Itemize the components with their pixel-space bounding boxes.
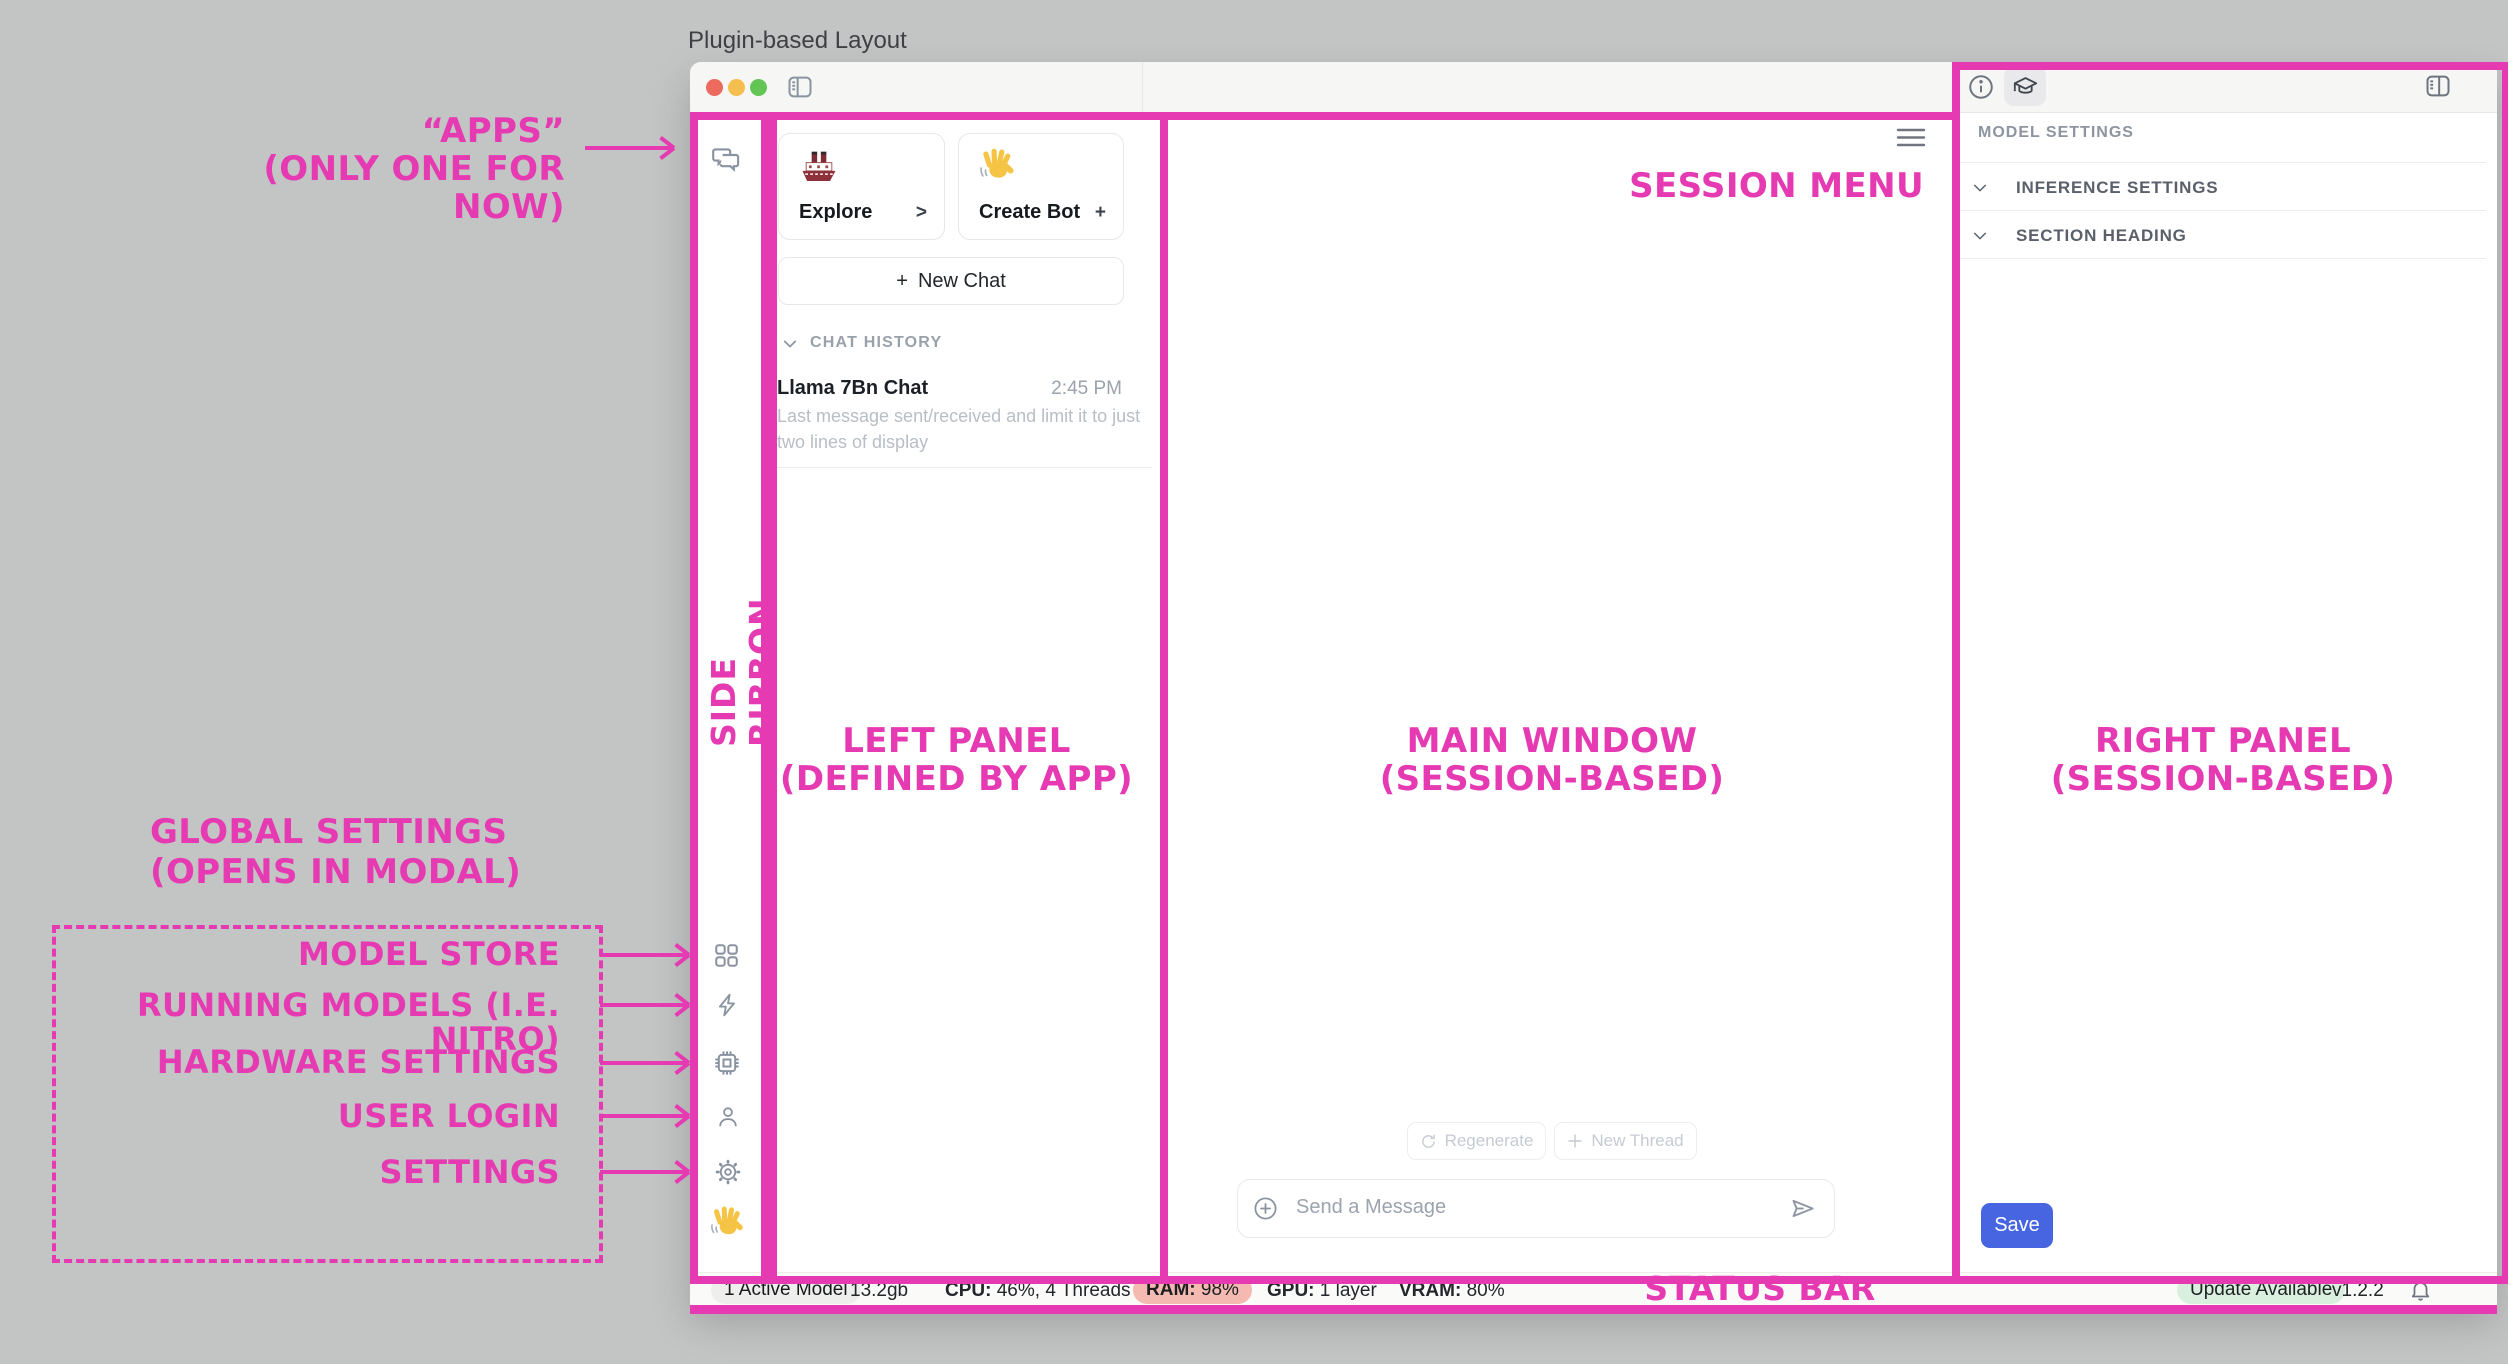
explore-card-label: Explore bbox=[799, 201, 872, 224]
hardware-settings-button[interactable] bbox=[713, 1049, 741, 1077]
create-bot-card-plus: + bbox=[1095, 202, 1106, 224]
new-chat-label: New Chat bbox=[918, 270, 1006, 293]
model-store-button[interactable] bbox=[712, 941, 741, 970]
new-thread-label: New Thread bbox=[1591, 1131, 1683, 1151]
section-heading-label[interactable]: SECTION HEADING bbox=[2016, 226, 2187, 246]
update-available-badge[interactable]: Update Available bbox=[2177, 1276, 2345, 1304]
right-panel-divider bbox=[1960, 258, 2486, 259]
running-models-arrow bbox=[600, 1003, 688, 1007]
settings-button[interactable] bbox=[714, 1158, 742, 1186]
plus-icon: + bbox=[896, 270, 908, 293]
notifications-button[interactable] bbox=[2408, 1278, 2433, 1303]
chevron-down-icon bbox=[1971, 227, 1989, 245]
right-panel-annotation: RIGHT PANEL (SESSION-BASED) bbox=[1952, 722, 2494, 798]
bell-icon bbox=[2408, 1278, 2433, 1303]
lightning-icon bbox=[715, 992, 741, 1018]
session-menu-annotation: SESSION MENU bbox=[1600, 167, 1924, 205]
wave-hand-icon bbox=[708, 1204, 748, 1244]
settings-annotation: SETTINGS bbox=[60, 1155, 560, 1189]
apps-arrow bbox=[585, 146, 673, 150]
global-settings-group-box bbox=[52, 925, 603, 1263]
settings-arrow bbox=[600, 1170, 688, 1174]
gpu-usage: GPU: 1 layer bbox=[1267, 1280, 1377, 1302]
message-input[interactable]: Send a Message bbox=[1237, 1179, 1835, 1238]
chat-app-button[interactable] bbox=[710, 143, 742, 175]
minimize-traffic-light[interactable] bbox=[728, 79, 745, 96]
memory-usage: 13.2gb bbox=[850, 1280, 908, 1302]
right-panel-divider bbox=[1960, 210, 2486, 211]
model-settings-tab[interactable] bbox=[2004, 66, 2046, 106]
ship-emoji bbox=[797, 148, 841, 192]
chevron-down-icon bbox=[1971, 179, 1989, 197]
chat-history-collapse[interactable] bbox=[781, 335, 799, 353]
model-store-arrow bbox=[600, 953, 688, 957]
left-panel-annotation: LEFT PANEL (DEFINED BY APP) bbox=[761, 722, 1152, 798]
send-button[interactable] bbox=[1789, 1195, 1816, 1222]
ram-usage-badge: RAM: 98% bbox=[1133, 1276, 1252, 1304]
chat-history-header: CHAT HISTORY bbox=[810, 334, 942, 352]
refresh-icon bbox=[1420, 1133, 1437, 1150]
message-placeholder: Send a Message bbox=[1296, 1196, 1446, 1219]
model-store-annotation: MODEL STORE bbox=[60, 937, 560, 971]
user-login-annotation: USER LOGIN bbox=[60, 1099, 560, 1133]
user-login-button[interactable] bbox=[715, 1104, 741, 1130]
main-window-annotation: MAIN WINDOW (SESSION-BASED) bbox=[1160, 722, 1944, 798]
design-canvas: Plugin-based Layout bbox=[0, 0, 2508, 1364]
chat-item-title: Llama 7Bn Chat bbox=[777, 377, 928, 400]
session-menu-button[interactable] bbox=[1896, 127, 1926, 148]
gear-icon bbox=[714, 1158, 742, 1186]
hardware-settings-arrow bbox=[600, 1061, 688, 1065]
cpu-usage: CPU: 46%, 4 Threads bbox=[945, 1280, 1131, 1302]
section-heading-collapse[interactable] bbox=[1971, 227, 1989, 245]
sidebar-toggle-icon[interactable] bbox=[786, 73, 814, 101]
window-titlebar bbox=[690, 62, 2497, 113]
explore-card[interactable]: Explore > bbox=[778, 133, 945, 240]
chat-item-preview: Last message sent/received and limit it … bbox=[777, 403, 1149, 455]
right-panel-divider bbox=[1960, 162, 2486, 163]
save-button[interactable]: Save bbox=[1981, 1203, 2053, 1248]
info-icon bbox=[1966, 72, 1996, 102]
status-bar-annotation: STATUS BAR bbox=[1620, 1272, 1900, 1305]
app-version: v1.2.2 bbox=[2332, 1280, 2384, 1302]
running-models-button[interactable] bbox=[715, 992, 741, 1018]
new-chat-button[interactable]: + New Chat bbox=[778, 257, 1124, 305]
side-ribbon-annotation: SIDE RIBBON bbox=[705, 527, 781, 747]
chat-item-time: 2:45 PM bbox=[1030, 378, 1122, 400]
graduation-cap-icon bbox=[2012, 73, 2039, 100]
chat-list-divider bbox=[765, 467, 1152, 468]
window-bottom-annotation-bar bbox=[690, 1305, 2497, 1314]
regenerate-button[interactable]: Regenerate bbox=[1407, 1122, 1546, 1160]
attach-plus-icon[interactable] bbox=[1252, 1195, 1279, 1222]
inference-settings-collapse[interactable] bbox=[1971, 179, 1989, 197]
user-icon bbox=[715, 1104, 741, 1130]
app-window bbox=[690, 62, 2497, 1305]
zoom-traffic-light[interactable] bbox=[750, 79, 767, 96]
right-panel-toggle-icon[interactable] bbox=[2424, 72, 2452, 100]
user-login-arrow bbox=[600, 1114, 688, 1118]
explore-card-chevron: > bbox=[916, 202, 927, 224]
close-traffic-light[interactable] bbox=[706, 79, 723, 96]
hardware-settings-annotation: HARDWARE SETTINGS bbox=[60, 1045, 560, 1079]
model-settings-header: MODEL SETTINGS bbox=[1978, 124, 2134, 142]
regenerate-label: Regenerate bbox=[1445, 1131, 1534, 1151]
hamburger-icon bbox=[1896, 127, 1926, 148]
wave-hand-emoji bbox=[977, 146, 1019, 188]
send-icon bbox=[1789, 1195, 1816, 1222]
info-tab[interactable] bbox=[1966, 72, 1996, 102]
create-bot-card[interactable]: Create Bot + bbox=[958, 133, 1124, 240]
global-settings-annotation: GLOBAL SETTINGS (OPENS IN MODAL) bbox=[150, 812, 521, 892]
grid-icon bbox=[712, 941, 741, 970]
inference-settings-label[interactable]: INFERENCE SETTINGS bbox=[2016, 178, 2218, 198]
titlebar-divider bbox=[1142, 62, 1143, 112]
plus-icon bbox=[1567, 1133, 1583, 1149]
apps-annotation: “APPS” (ONLY ONE FOR NOW) bbox=[140, 112, 565, 226]
active-model-badge: 1 Active Model bbox=[711, 1276, 861, 1304]
chip-icon bbox=[713, 1049, 741, 1077]
create-bot-card-label: Create Bot bbox=[979, 201, 1080, 224]
new-thread-button[interactable]: New Thread bbox=[1554, 1122, 1697, 1160]
page-title: Plugin-based Layout bbox=[688, 27, 907, 55]
vram-usage: VRAM: 80% bbox=[1399, 1280, 1505, 1302]
chevron-down-icon bbox=[781, 335, 799, 353]
